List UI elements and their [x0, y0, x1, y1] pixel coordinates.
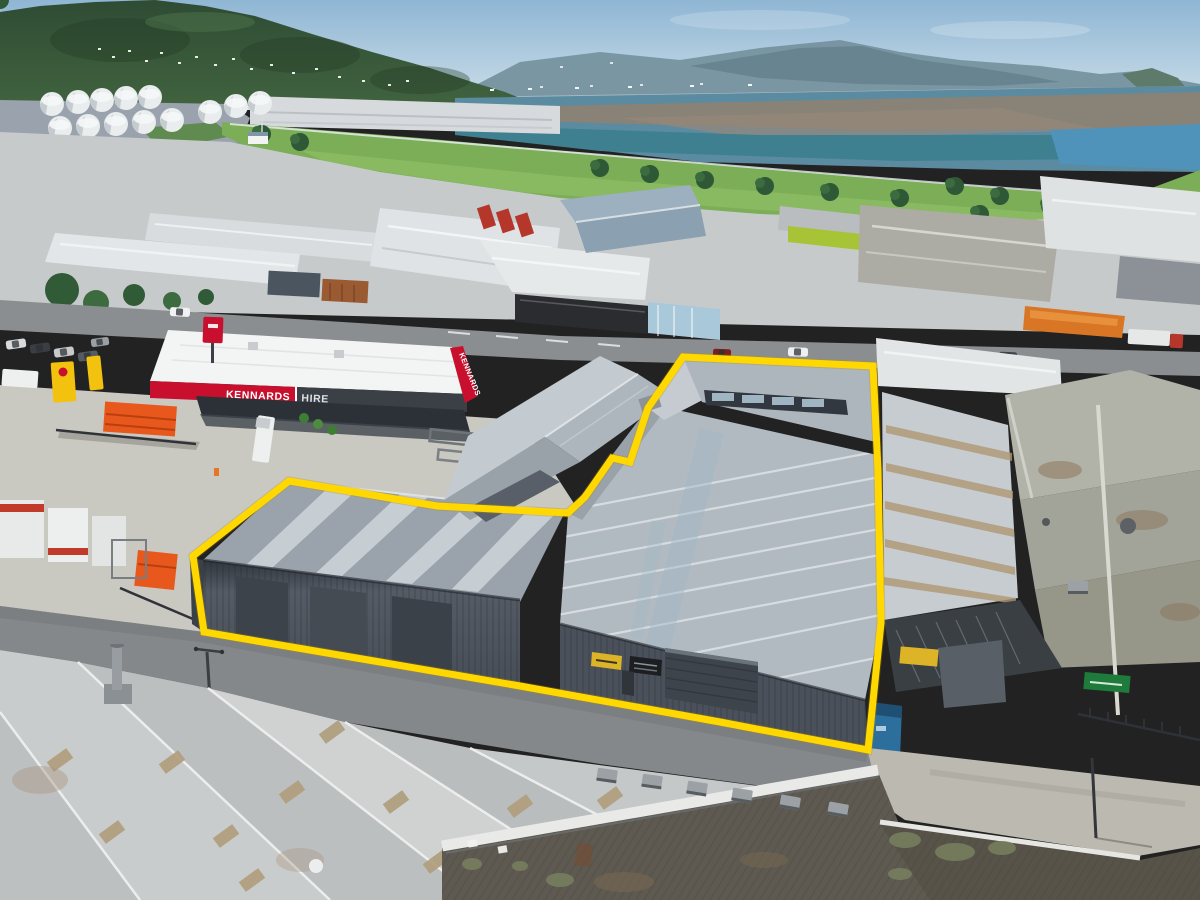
aerial-photo: KENNARDS HIRE KENNARDS [0, 0, 1200, 900]
neighbour-buildings [868, 338, 1200, 856]
yard-fence-right [1078, 708, 1200, 740]
